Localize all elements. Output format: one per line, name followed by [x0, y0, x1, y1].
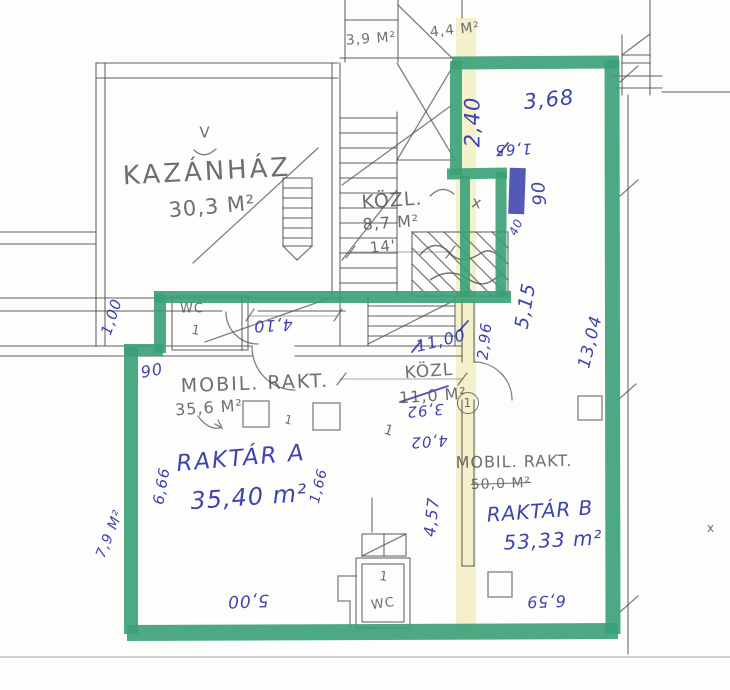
floor-plan-scan: KAZÁNHÁZ30,3 M²VKÖZL.8,7 M²14'3,9 M²4,4 … [0, 0, 730, 690]
floor-plan-linework [0, 0, 730, 690]
radiator-symbol [283, 178, 312, 260]
columns [243, 396, 602, 597]
entrance-door-blue [508, 168, 526, 215]
green-marker-boundary [124, 60, 619, 634]
